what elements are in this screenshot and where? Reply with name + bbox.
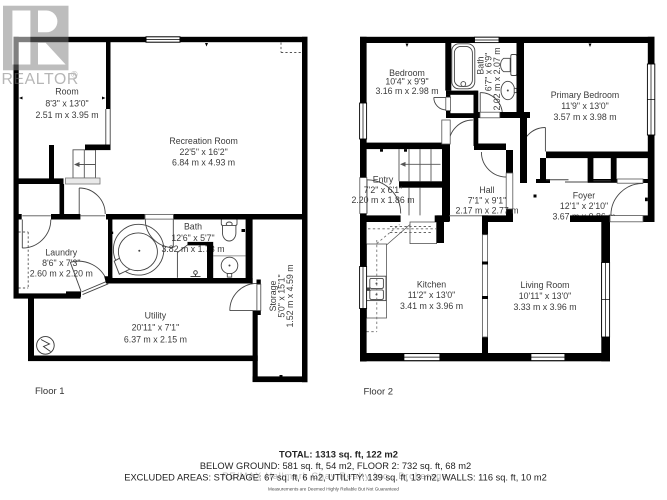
svg-text:6.84 m x 4.93 m: 6.84 m x 4.93 m xyxy=(172,158,235,168)
svg-text:BELOW GROUND: 581 sq. ft, 54 m: BELOW GROUND: 581 sq. ft, 54 m2, FLOOR 2… xyxy=(200,461,471,471)
svg-text:7'2" x 6'1": 7'2" x 6'1" xyxy=(364,185,402,195)
svg-text:3.57 m x 3.98 m: 3.57 m x 3.98 m xyxy=(553,112,616,122)
svg-text:Hall: Hall xyxy=(479,185,494,195)
svg-text:2.02 m x 2.07 m: 2.02 m x 2.07 m xyxy=(492,47,502,110)
svg-text:8'3" x 13'0": 8'3" x 13'0" xyxy=(45,99,88,109)
svg-text:6.37 m x 2.15 m: 6.37 m x 2.15 m xyxy=(124,335,187,345)
svg-text:2.60 m x 2.20 m: 2.60 m x 2.20 m xyxy=(30,269,93,279)
svg-text:Bath: Bath xyxy=(184,222,202,232)
svg-text:10'11" x 13'0": 10'11" x 13'0" xyxy=(519,291,572,301)
svg-text:Recreation Room: Recreation Room xyxy=(169,136,237,146)
svg-text:2.20 m x 1.86 m: 2.20 m x 1.86 m xyxy=(351,195,414,205)
svg-text:3.41 m x 3.96 m: 3.41 m x 3.96 m xyxy=(400,301,463,311)
svg-text:Primary Bedroom: Primary Bedroom xyxy=(551,90,619,100)
svg-text:11'2" x 13'0": 11'2" x 13'0" xyxy=(408,290,456,300)
svg-text:Floor 2: Floor 2 xyxy=(364,386,394,397)
svg-text:Entry: Entry xyxy=(373,175,394,185)
svg-text:Living Room: Living Room xyxy=(521,280,570,290)
svg-text:1.52 m x 4.59 m: 1.52 m x 4.59 m xyxy=(285,264,295,327)
svg-text:Floor 1: Floor 1 xyxy=(35,386,65,397)
svg-text:22'5" x 16'2": 22'5" x 16'2" xyxy=(179,147,227,157)
svg-text:7'1" x 9'1": 7'1" x 9'1" xyxy=(468,196,506,206)
svg-text:20'11" x 7'1": 20'11" x 7'1" xyxy=(132,323,180,333)
svg-text:2.17 m x 2.77 m: 2.17 m x 2.77 m xyxy=(455,206,518,216)
svg-text:Laundry: Laundry xyxy=(45,248,77,258)
svg-text:11'9" x 13'0": 11'9" x 13'0" xyxy=(561,101,609,111)
svg-text:EXCLUDED AREAS: STORAGE: 67 sq: EXCLUDED AREAS: STORAGE: 67 sq. ft, 6 m2… xyxy=(124,473,547,483)
svg-text:3.82 m x 1.73 m: 3.82 m x 1.73 m xyxy=(161,244,224,254)
svg-text:8'6" x 7'3": 8'6" x 7'3" xyxy=(42,258,80,268)
svg-text:12'6" x 5'7": 12'6" x 5'7" xyxy=(171,233,214,243)
svg-text:REALTOR: REALTOR xyxy=(2,71,79,88)
svg-text:TOTAL: 1313 sq. ft, 122 m2: TOTAL: 1313 sq. ft, 122 m2 xyxy=(279,449,398,460)
svg-text:Kitchen: Kitchen xyxy=(417,280,446,290)
svg-text:12'1" x 2'10": 12'1" x 2'10" xyxy=(560,201,608,211)
svg-text:3.33 m x 3.96 m: 3.33 m x 3.96 m xyxy=(513,302,576,312)
svg-text:3.16 m x 2.98 m: 3.16 m x 2.98 m xyxy=(375,86,438,96)
svg-text:Foyer: Foyer xyxy=(573,191,596,201)
svg-text:Room: Room xyxy=(55,87,78,97)
svg-text:Utility: Utility xyxy=(145,311,167,321)
svg-text:®: ® xyxy=(71,70,78,80)
svg-text:Measurements are Deemed Highly: Measurements are Deemed Highly Reliable … xyxy=(268,487,399,492)
svg-text:2.51 m x 3.95 m: 2.51 m x 3.95 m xyxy=(35,110,98,120)
